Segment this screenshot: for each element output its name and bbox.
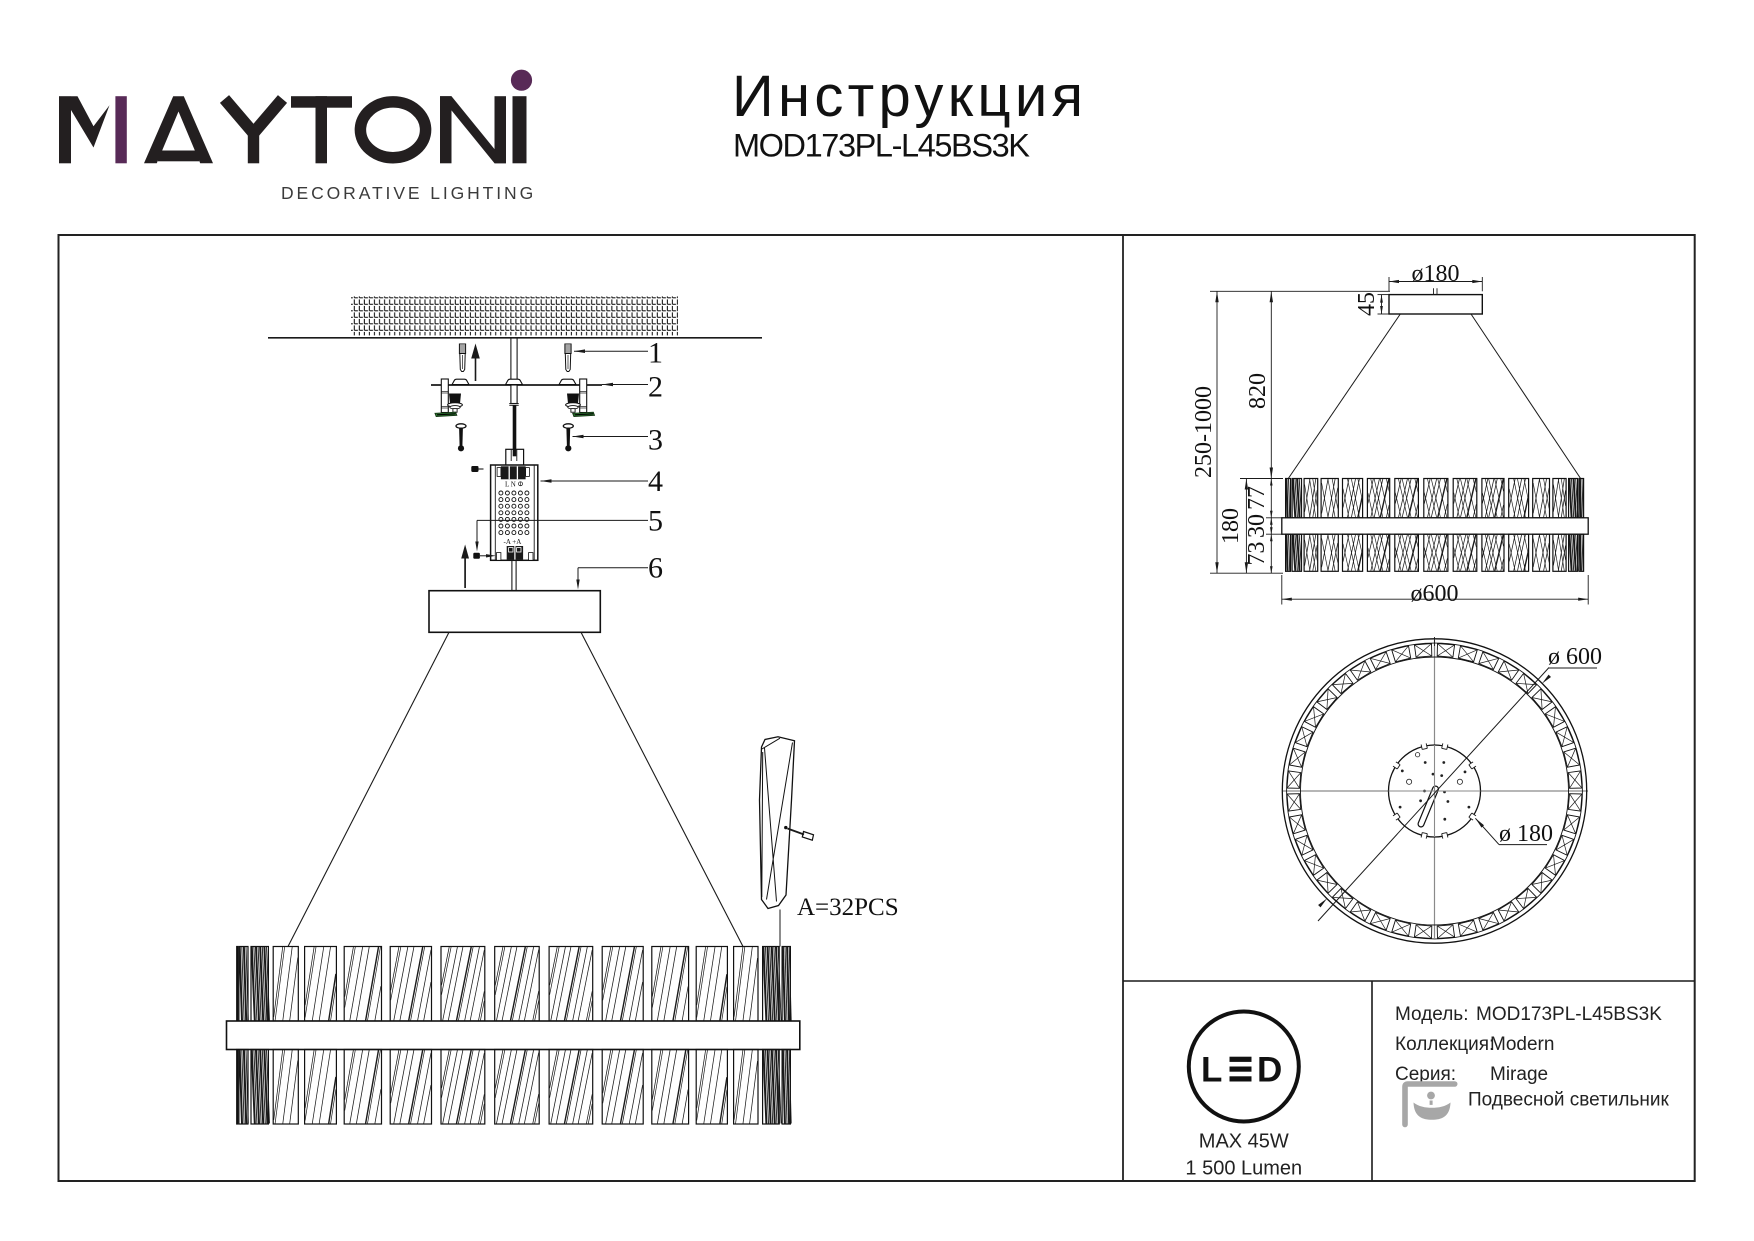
svg-text:250-1000: 250-1000 xyxy=(1191,386,1217,478)
svg-text:ø180: ø180 xyxy=(1412,261,1460,287)
svg-text:1 500 Lumen: 1 500 Lumen xyxy=(1185,1158,1302,1180)
svg-text:30: 30 xyxy=(1244,514,1270,538)
svg-text:2: 2 xyxy=(648,371,663,404)
svg-text:Коллекция:: Коллекция: xyxy=(1395,1034,1494,1055)
svg-text:Инструкция: Инструкция xyxy=(732,64,1087,129)
svg-text:45: 45 xyxy=(1354,292,1380,316)
svg-text:4: 4 xyxy=(648,465,663,498)
svg-text:820: 820 xyxy=(1245,373,1271,409)
svg-text:MAX 45W: MAX 45W xyxy=(1199,1131,1289,1153)
svg-text:ø 180: ø 180 xyxy=(1499,821,1553,847)
svg-text:-A +A: -A +A xyxy=(504,538,522,546)
svg-text:Mirage: Mirage xyxy=(1490,1064,1548,1085)
svg-text:A=32PCS: A=32PCS xyxy=(797,894,899,921)
svg-text:1: 1 xyxy=(648,337,663,370)
svg-text:D: D xyxy=(1257,1051,1282,1090)
svg-text:Modern: Modern xyxy=(1490,1034,1554,1055)
svg-text:ø 600: ø 600 xyxy=(1548,644,1602,670)
svg-text:Модель:: Модель: xyxy=(1395,1004,1468,1025)
svg-text:L N: L N xyxy=(505,481,516,489)
svg-text:5: 5 xyxy=(648,505,663,538)
svg-text:MOD173PL-L45BS3K: MOD173PL-L45BS3K xyxy=(1476,1004,1662,1025)
svg-text:180: 180 xyxy=(1218,508,1244,544)
svg-text:3: 3 xyxy=(648,424,663,457)
svg-text:L: L xyxy=(1201,1051,1222,1090)
svg-text:Подвесной светильник: Подвесной светильник xyxy=(1468,1090,1670,1111)
svg-text:6: 6 xyxy=(648,552,663,585)
svg-text:73: 73 xyxy=(1244,542,1270,566)
svg-text:DECORATIVE LIGHTING: DECORATIVE LIGHTING xyxy=(281,183,536,203)
svg-text:ø600: ø600 xyxy=(1411,581,1459,607)
svg-text:77: 77 xyxy=(1244,486,1270,510)
svg-text:MOD173PL-L45BS3K: MOD173PL-L45BS3K xyxy=(733,128,1030,164)
